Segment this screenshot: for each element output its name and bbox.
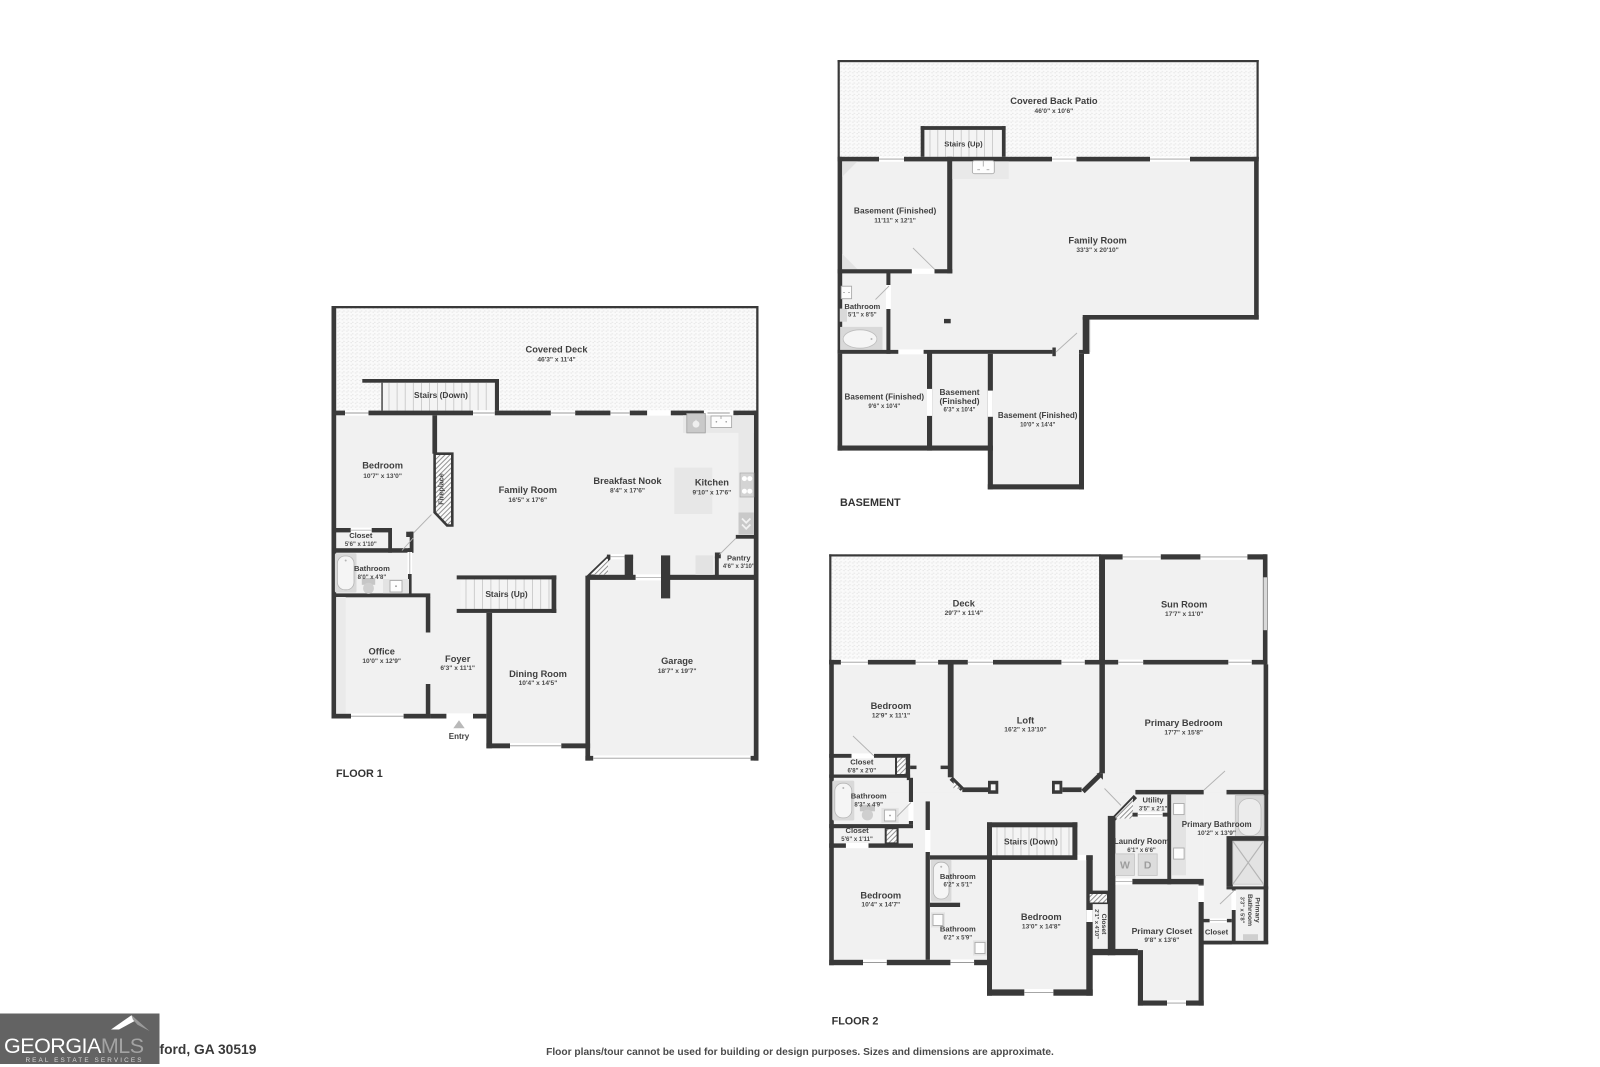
svg-text:Bathroom: Bathroom [851, 792, 887, 801]
svg-text:Bathroom: Bathroom [940, 872, 976, 881]
svg-text:REAL ESTATE SERVICES: REAL ESTATE SERVICES [25, 1057, 143, 1064]
svg-text:Primary Bedroom: Primary Bedroom [1145, 718, 1223, 728]
svg-text:Bedroom: Bedroom [871, 701, 912, 711]
svg-text:10'2" x 13'9": 10'2" x 13'9" [1197, 830, 1236, 837]
svg-text:8'3" x 4'9": 8'3" x 4'9" [854, 802, 883, 808]
svg-text:5'6" x 1'10": 5'6" x 1'10" [345, 542, 377, 548]
svg-text:Closet: Closet [850, 757, 874, 766]
svg-text:GEORGIAMLS: GEORGIAMLS [4, 1034, 144, 1058]
svg-text:Primary: Primary [1254, 897, 1261, 923]
svg-text:13'0" x 14'8": 13'0" x 14'8" [1022, 923, 1061, 930]
svg-text:Family Room: Family Room [1068, 235, 1126, 245]
svg-text:Bedroom: Bedroom [362, 461, 403, 471]
svg-text:Basement (Finished): Basement (Finished) [844, 392, 924, 401]
svg-text:Primary Closet: Primary Closet [1132, 926, 1193, 936]
svg-text:Dining Room: Dining Room [509, 669, 567, 679]
svg-text:Kitchen: Kitchen [695, 478, 729, 488]
svg-text:FLOOR 1: FLOOR 1 [336, 768, 383, 780]
svg-text:46'3" x 11'4": 46'3" x 11'4" [537, 356, 575, 363]
svg-text:6'3" x 10'4": 6'3" x 10'4" [944, 408, 976, 414]
svg-text:Utility: Utility [1143, 796, 1165, 805]
svg-text:46'0" x 10'6": 46'0" x 10'6" [1035, 108, 1074, 115]
svg-text:FLOOR 2: FLOOR 2 [832, 1015, 879, 1027]
svg-text:9'8" x 13'6": 9'8" x 13'6" [1144, 937, 1179, 944]
svg-text:Entry: Entry [449, 732, 470, 741]
svg-text:W: W [1120, 860, 1130, 872]
svg-text:D: D [1144, 860, 1152, 872]
svg-text:Floor plans/tour cannot be use: Floor plans/tour cannot be used for buil… [546, 1047, 1054, 1058]
svg-text:3'3" x 5'8": 3'3" x 5'8" [1239, 897, 1245, 924]
svg-text:Covered Back Patio: Covered Back Patio [1010, 96, 1098, 106]
svg-text:Office: Office [369, 646, 395, 656]
svg-text:Bathroom: Bathroom [1246, 894, 1253, 926]
svg-text:Sun Room: Sun Room [1161, 600, 1207, 610]
svg-text:ford, GA 30519: ford, GA 30519 [160, 1042, 257, 1057]
svg-text:5'1" x 8'5": 5'1" x 8'5" [848, 313, 877, 319]
svg-text:Primary Bathroom: Primary Bathroom [1182, 820, 1252, 829]
svg-text:10'0" x 14'4": 10'0" x 14'4" [1020, 423, 1055, 429]
svg-text:Stairs (Down): Stairs (Down) [414, 390, 468, 400]
svg-text:10'7" x 13'0": 10'7" x 13'0" [363, 473, 402, 480]
svg-text:Bathroom: Bathroom [354, 564, 390, 573]
svg-text:6'1" x 6'6": 6'1" x 6'6" [1127, 848, 1156, 854]
svg-text:29'7" x 11'4": 29'7" x 11'4" [945, 610, 983, 617]
svg-text:10'4" x 14'7": 10'4" x 14'7" [861, 902, 900, 909]
svg-text:4'6" x 3'10": 4'6" x 3'10" [723, 564, 755, 570]
svg-text:Family Room: Family Room [499, 485, 557, 495]
svg-text:Deck: Deck [953, 598, 976, 608]
svg-text:12'9" x 11'1": 12'9" x 11'1" [872, 712, 910, 719]
svg-text:(Finished): (Finished) [939, 396, 979, 406]
svg-text:33'3" x 20'10": 33'3" x 20'10" [1076, 247, 1118, 254]
svg-text:10'4" x 14'5": 10'4" x 14'5" [519, 680, 558, 687]
svg-text:6'2" x 5'1": 6'2" x 5'1" [944, 883, 973, 889]
svg-text:17'7" x 15'8": 17'7" x 15'8" [1164, 730, 1203, 737]
svg-text:9'6" x 10'4": 9'6" x 10'4" [868, 404, 900, 410]
svg-text:8'4" x 17'6": 8'4" x 17'6" [610, 488, 645, 495]
svg-text:16'5" x 17'6": 16'5" x 17'6" [508, 497, 547, 504]
svg-text:Loft: Loft [1017, 715, 1035, 725]
svg-text:Bathroom: Bathroom [844, 302, 880, 311]
svg-text:Closet: Closet [845, 826, 869, 835]
svg-text:Foyer: Foyer [445, 654, 471, 664]
svg-text:11'11" x 12'1": 11'11" x 12'1" [874, 217, 916, 224]
svg-text:Bathroom: Bathroom [940, 925, 976, 934]
svg-text:Bedroom: Bedroom [1021, 912, 1062, 922]
svg-text:6'8" x 2'0": 6'8" x 2'0" [848, 768, 877, 774]
svg-text:3'5" x 2'1": 3'5" x 2'1" [1139, 806, 1168, 812]
svg-text:BASEMENT: BASEMENT [840, 497, 901, 509]
svg-text:Covered Deck: Covered Deck [525, 345, 588, 355]
svg-text:Stairs (Up): Stairs (Up) [944, 139, 983, 148]
svg-text:9'10" x 17'6": 9'10" x 17'6" [693, 490, 732, 497]
svg-text:Closet: Closet [1205, 928, 1229, 937]
svg-text:6'2" x 5'9": 6'2" x 5'9" [944, 936, 973, 942]
svg-text:Closet: Closet [1100, 914, 1107, 936]
svg-text:18'7" x 19'7": 18'7" x 19'7" [658, 668, 697, 675]
svg-text:17'7" x 11'0": 17'7" x 11'0" [1165, 611, 1203, 618]
svg-text:Fireplace: Fireplace [437, 473, 446, 505]
svg-text:Closet: Closet [349, 531, 373, 540]
svg-text:2'1" x 4'10": 2'1" x 4'10" [1093, 909, 1099, 939]
svg-text:Breakfast Nook: Breakfast Nook [593, 476, 662, 486]
svg-text:10'0" x 12'9": 10'0" x 12'9" [362, 658, 401, 665]
svg-text:6'3" x 11'1": 6'3" x 11'1" [440, 665, 475, 672]
svg-text:Pantry: Pantry [727, 553, 751, 562]
svg-text:Garage: Garage [661, 656, 693, 666]
svg-text:16'2" x 13'10": 16'2" x 13'10" [1004, 727, 1046, 734]
svg-text:5'6" x 1'11": 5'6" x 1'11" [841, 837, 873, 843]
svg-text:Basement (Finished): Basement (Finished) [998, 411, 1078, 420]
svg-text:Basement (Finished): Basement (Finished) [854, 206, 937, 216]
svg-text:Stairs (Down): Stairs (Down) [1004, 836, 1058, 846]
svg-text:Bedroom: Bedroom [860, 890, 901, 900]
svg-text:8'0" x 4'8": 8'0" x 4'8" [358, 575, 387, 581]
svg-text:Laundry Room: Laundry Room [1114, 837, 1169, 846]
svg-text:Stairs (Up): Stairs (Up) [485, 589, 528, 599]
